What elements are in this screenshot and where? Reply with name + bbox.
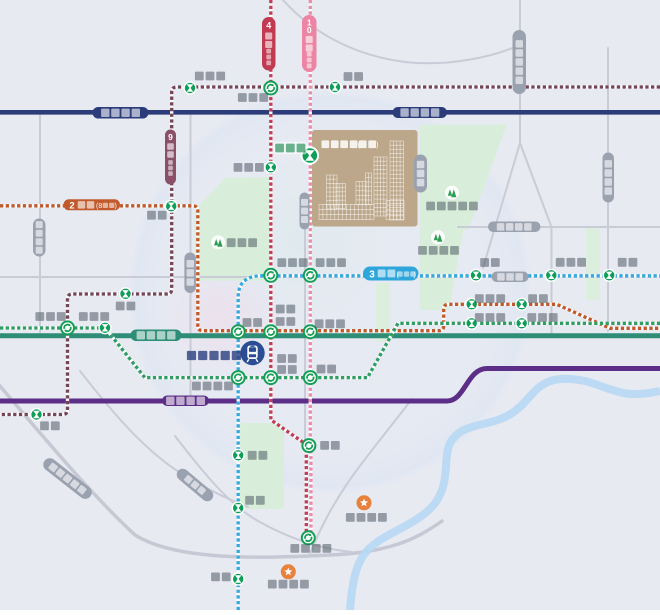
svg-text:0: 0: [307, 25, 312, 35]
svg-text:): ): [414, 272, 416, 279]
svg-text:4: 4: [266, 21, 271, 31]
svg-text:2: 2: [69, 200, 74, 211]
svg-text:): ): [115, 203, 117, 210]
svg-text:(8: (8: [96, 203, 102, 210]
svg-text:9: 9: [168, 132, 173, 142]
svg-text:3: 3: [369, 269, 375, 280]
